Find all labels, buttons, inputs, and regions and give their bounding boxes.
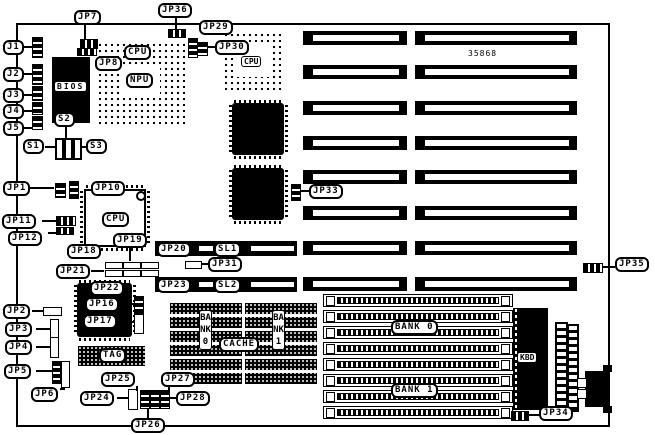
label-j3: J3	[3, 88, 24, 103]
jumper-jp11	[56, 216, 76, 226]
label-jp31: JP31	[208, 257, 242, 272]
jumper-jp17	[134, 314, 144, 334]
label-j5: J5	[3, 121, 24, 136]
bank1-simm-label: BANK 1	[391, 383, 438, 398]
jumper-jp6	[61, 361, 70, 388]
expansion-slot-segment	[303, 65, 407, 79]
label-jp25: JP25	[101, 372, 135, 387]
simm-socket	[323, 342, 513, 355]
jumper-jp26	[150, 390, 160, 409]
connector-j2	[32, 64, 43, 85]
connector-j1	[32, 37, 43, 58]
label-j1: J1	[3, 40, 24, 55]
slot-stripe	[251, 282, 294, 287]
slot-stripe	[425, 210, 569, 216]
expansion-slot-segment	[303, 206, 407, 220]
jumper-jp36	[168, 29, 186, 38]
simm-pin-row	[337, 313, 499, 320]
label-jp35: JP35	[615, 257, 649, 272]
label-jp21: JP21	[56, 264, 90, 279]
expansion-slot-segment	[415, 101, 577, 115]
qfp-chip-b	[232, 168, 284, 220]
label-sl2: SL2	[214, 278, 241, 293]
jumper-jp4	[50, 337, 59, 358]
keyboard-din-connector	[603, 406, 612, 413]
chip-pins	[234, 165, 282, 168]
jumper-jp16	[134, 296, 144, 314]
cpu-qfp-label: CPU	[102, 212, 129, 227]
simm-clip	[326, 360, 335, 370]
kbd-chip-label: KBD	[517, 352, 537, 363]
simm-pin-row	[337, 345, 499, 352]
label-jp27: JP27	[161, 372, 195, 387]
jumper-jp1	[55, 183, 66, 198]
jumper-pad	[123, 262, 141, 269]
pointer-line	[147, 408, 149, 418]
cache-label: CACHE	[219, 337, 259, 352]
label-jp5: JP5	[4, 364, 31, 379]
label-jp22: JP22	[90, 281, 124, 296]
slot-stripe	[425, 140, 569, 146]
simm-clip	[501, 296, 510, 306]
bank0-dip-label: BANK0	[199, 310, 212, 350]
connector-j4	[32, 102, 43, 115]
jumper-pad	[123, 270, 141, 277]
expansion-slot-segment	[415, 241, 577, 255]
simm-clip	[326, 312, 335, 322]
label-jp30: JP30	[215, 40, 249, 55]
jumper-pad	[141, 270, 159, 277]
pointer-line	[84, 25, 86, 39]
pointer-line	[42, 220, 56, 222]
simm-socket	[323, 294, 513, 307]
label-jp8: JP8	[95, 56, 122, 71]
slot-stripe	[313, 35, 399, 41]
simm-clip	[501, 360, 510, 370]
jumper-jp30	[197, 42, 208, 56]
tag-chip-label: TAG	[99, 348, 126, 363]
chip-pins	[147, 191, 150, 245]
simm-pin-row	[337, 361, 499, 368]
chip-pins	[229, 170, 232, 218]
label-s1: S1	[23, 139, 44, 154]
keyboard-din-connector	[585, 371, 610, 407]
pointer-line	[30, 187, 54, 189]
pointer-line	[48, 232, 56, 234]
bios-chip-label: BIOS	[54, 81, 87, 92]
slot-stripe	[199, 282, 213, 287]
pointer-line	[602, 266, 615, 268]
slot-stripe	[425, 281, 569, 287]
keyboard-din-connector	[603, 365, 612, 372]
pointer-line	[91, 270, 104, 272]
jumper-jp25	[140, 390, 150, 409]
pointer-line	[60, 388, 65, 390]
part-number: 35868	[468, 49, 497, 58]
simm-socket	[323, 358, 513, 371]
chip-pins	[285, 105, 288, 153]
label-jp19: JP19	[113, 233, 147, 248]
chip-pins	[229, 105, 232, 153]
chip-pins	[285, 170, 288, 218]
simm-clip	[326, 408, 335, 418]
pointer-line	[136, 386, 138, 391]
label-jp2: JP2	[3, 304, 30, 319]
cpu-socket1-label: CPU	[124, 45, 151, 60]
label-sl1: SL1	[214, 242, 241, 257]
jumper-jp27	[160, 390, 170, 409]
pin1-mark	[136, 191, 146, 201]
slot-stripe	[425, 105, 569, 111]
pointer-line	[201, 263, 208, 265]
motherboard-diagram: JP7 JP8 JP36 JP29 JP30 J1 J2 J3 J4 J5 BI…	[0, 0, 655, 435]
pointer-line	[300, 190, 309, 192]
slot-stripe	[313, 281, 399, 287]
simm-clip	[326, 296, 335, 306]
qfp-chip-a	[232, 103, 284, 155]
slot-stripe	[425, 245, 569, 251]
pointer-line	[175, 18, 177, 29]
label-jp10: JP10	[91, 181, 125, 196]
pointer-line	[36, 328, 50, 330]
slot-stripe	[313, 245, 399, 251]
dip-switch-bar	[55, 138, 64, 160]
jumper-jp35	[583, 263, 603, 273]
label-jp23: JP23	[157, 278, 191, 293]
chip-pins	[234, 100, 282, 103]
label-jp1: JP1	[3, 181, 30, 196]
pointer-line	[169, 397, 176, 399]
label-jp3: JP3	[5, 322, 32, 337]
slot-stripe	[425, 174, 569, 180]
jumper-jp1b	[69, 181, 79, 199]
label-jp11: JP11	[2, 214, 36, 229]
pointer-line	[45, 146, 55, 148]
label-jp16: JP16	[85, 297, 119, 312]
label-jp36: JP36	[158, 3, 192, 18]
slot-stripe	[199, 246, 213, 251]
label-jp24: JP24	[80, 391, 114, 406]
expansion-slot-segment	[415, 206, 577, 220]
jumper-pad	[105, 270, 123, 277]
simm-clip	[501, 376, 510, 386]
pointer-line	[32, 310, 43, 312]
connector-j5	[32, 116, 43, 130]
expansion-slot-segment	[415, 170, 577, 184]
jumper-jp12	[56, 227, 74, 235]
expansion-slot-segment	[415, 31, 577, 45]
simm-pin-row	[337, 297, 499, 304]
bank1-dip-label: BANK1	[272, 310, 285, 350]
din-pin	[577, 378, 587, 388]
cpu-socket2-label: CPU	[241, 56, 261, 67]
dip-switch-bar	[73, 138, 82, 160]
simm-clip	[326, 328, 335, 338]
label-jp33: JP33	[309, 184, 343, 199]
simm-clip	[501, 392, 510, 402]
jumper-jp24	[128, 389, 138, 410]
pointer-line	[117, 397, 128, 399]
expansion-slot-segment	[303, 170, 407, 184]
simm-clip	[326, 344, 335, 354]
label-jp7: JP7	[74, 10, 101, 25]
connector-j3	[32, 86, 43, 101]
simm-clip	[326, 376, 335, 386]
chip-pins	[79, 338, 130, 341]
expansion-slot-segment	[415, 65, 577, 79]
slot-stripe	[313, 105, 399, 111]
expansion-slot-segment	[303, 101, 407, 115]
dip-switch-bar	[64, 138, 73, 160]
chip-pins	[74, 285, 77, 335]
jumper-jp31	[185, 261, 202, 269]
chip-pins	[80, 191, 83, 245]
label-jp12: JP12	[8, 231, 42, 246]
pointer-line	[126, 303, 134, 305]
jumper-jp34	[511, 411, 529, 421]
npu-socket-label: NPU	[126, 73, 153, 88]
slot-stripe	[425, 69, 569, 75]
expansion-slot-segment	[303, 241, 407, 255]
bank0-simm-label: BANK 0	[391, 320, 438, 335]
expansion-slot-segment	[415, 136, 577, 150]
label-jp29: JP29	[199, 20, 233, 35]
jumper-pad	[141, 262, 159, 269]
jumper-jp33	[291, 184, 301, 201]
pointer-line	[36, 346, 50, 348]
label-jp28: JP28	[176, 391, 210, 406]
jumper-pad	[105, 262, 123, 269]
slot-stripe	[425, 35, 569, 41]
simm-socket	[323, 406, 513, 419]
chip-pins	[234, 156, 282, 159]
expansion-slot-segment	[303, 31, 407, 45]
label-jp18: JP18	[67, 244, 101, 259]
label-jp17: JP17	[83, 314, 117, 329]
jumper-jp5	[52, 361, 61, 384]
label-j2: J2	[3, 67, 24, 82]
label-s2: S2	[54, 112, 75, 127]
slot-stripe	[313, 210, 399, 216]
label-jp34: JP34	[539, 406, 573, 421]
pointer-line	[129, 248, 131, 261]
simm-clip	[501, 344, 510, 354]
jumper-jp2	[43, 307, 62, 316]
slot-stripe	[313, 69, 399, 75]
simm-clip	[501, 408, 510, 418]
expansion-slot-segment	[415, 277, 577, 291]
pointer-line	[36, 370, 52, 372]
simm-pin-row	[337, 409, 499, 416]
din-pin	[577, 389, 587, 399]
pointer-line	[65, 127, 67, 138]
label-jp20: JP20	[157, 242, 191, 257]
chip-pins	[234, 221, 282, 224]
simm-clip	[501, 328, 510, 338]
slot-stripe	[313, 174, 399, 180]
slot-stripe	[313, 140, 399, 146]
label-jp26: JP26	[131, 418, 165, 433]
expansion-slot-segment	[303, 277, 407, 291]
label-j4: J4	[3, 104, 24, 119]
simm-clip	[501, 312, 510, 322]
jumper-jp8	[77, 48, 97, 56]
pointer-line	[122, 321, 134, 323]
label-jp4: JP4	[5, 340, 32, 355]
slot-stripe	[251, 246, 294, 251]
label-s3: S3	[86, 139, 107, 154]
label-jp6: JP6	[31, 387, 58, 402]
simm-clip	[326, 392, 335, 402]
expansion-slot-segment	[303, 136, 407, 150]
